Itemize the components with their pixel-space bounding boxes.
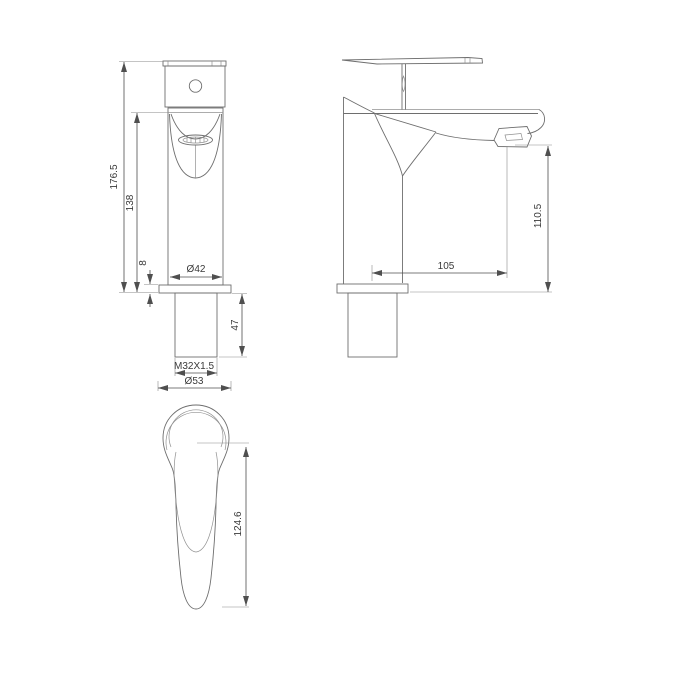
handle-inner-outline — [174, 452, 218, 552]
dim-label-overall-height: 176.5 — [109, 164, 120, 189]
side-threaded-shank — [348, 293, 397, 357]
side-lever-ticks — [465, 58, 470, 63]
dim-label-flange-diameter: Ø53 — [185, 376, 204, 387]
dim-label-spout-reach: 105 — [438, 261, 455, 272]
drawing-canvas: 176.5 138 8 Ø42 47 M32X1.5 Ø53 — [0, 0, 680, 681]
handle-top-view: 124.6 — [163, 405, 249, 609]
dim-label-handle-length: 124.6 — [233, 511, 244, 536]
front-threaded-shank — [175, 293, 217, 357]
front-view: 176.5 138 8 Ø42 47 M32X1.5 Ø53 — [109, 61, 247, 391]
side-stem-detail — [402, 76, 405, 92]
handle-middle-arc — [166, 412, 226, 450]
handle-outer-outline — [163, 405, 229, 609]
dim-label-thread-spec: M32X1.5 — [174, 361, 214, 372]
technical-drawing-svg: 176.5 138 8 Ø42 47 M32X1.5 Ø53 — [0, 0, 680, 681]
front-handle-block — [165, 66, 225, 107]
side-view: 105 110.5 — [337, 58, 552, 358]
side-spout-underside-edge — [375, 114, 437, 133]
side-mounting-flange — [337, 284, 408, 293]
front-extension-lines — [119, 62, 247, 392]
front-aerator — [179, 135, 213, 145]
handle-inner-arc — [169, 410, 223, 447]
front-lever-top-bar — [163, 61, 226, 66]
side-front-profile — [375, 114, 403, 284]
side-aerator — [494, 127, 532, 148]
front-indicator-button — [189, 80, 201, 92]
dim-label-shank-length: 47 — [230, 319, 241, 331]
side-spout-underside — [436, 133, 494, 141]
dim-label-outlet-height: 110.5 — [533, 203, 544, 228]
side-back-cover — [344, 97, 375, 113]
front-mounting-flange — [159, 285, 231, 293]
front-lever-bar-ticks — [168, 61, 221, 66]
dim-label-body-diameter: Ø42 — [187, 264, 206, 275]
side-extension-lines — [372, 145, 552, 292]
side-junction-curve — [403, 132, 437, 176]
dim-label-flange-thickness: 8 — [138, 260, 149, 266]
side-lever-blade — [342, 58, 483, 65]
dim-label-upper-height: 138 — [125, 194, 136, 211]
